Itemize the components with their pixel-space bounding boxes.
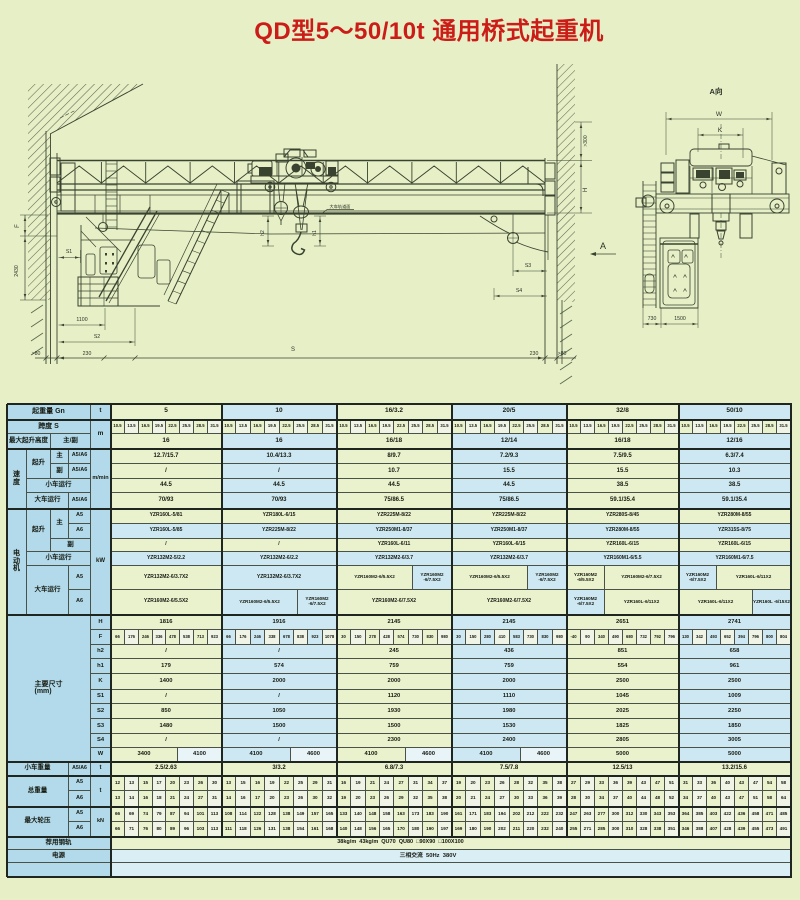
svg-text:A向: A向 [710,86,723,96]
svg-text:2430: 2430 [14,265,20,277]
svg-text:W: W [716,111,723,118]
svg-text:730: 730 [648,316,657,322]
svg-text:S3: S3 [525,263,531,269]
svg-text:1100: 1100 [76,317,87,323]
svg-text:S1: S1 [66,249,72,255]
svg-text:S4: S4 [516,288,522,294]
svg-text:h1: h1 [312,230,318,236]
svg-text:1500: 1500 [674,316,686,322]
svg-text:K: K [718,127,723,134]
svg-text:S: S [291,347,295,353]
svg-text:F: F [15,224,21,228]
svg-text:H: H [583,188,589,192]
svg-text:大车轨道面: 大车轨道面 [330,203,351,210]
svg-text:h2: h2 [260,230,266,236]
svg-text:S2: S2 [94,334,100,340]
svg-text:230: 230 [83,351,92,357]
svg-text:>80: >80 [32,351,41,357]
svg-text:A: A [600,241,606,251]
svg-text:230: 230 [530,351,539,357]
svg-text:>300: >300 [583,135,589,146]
